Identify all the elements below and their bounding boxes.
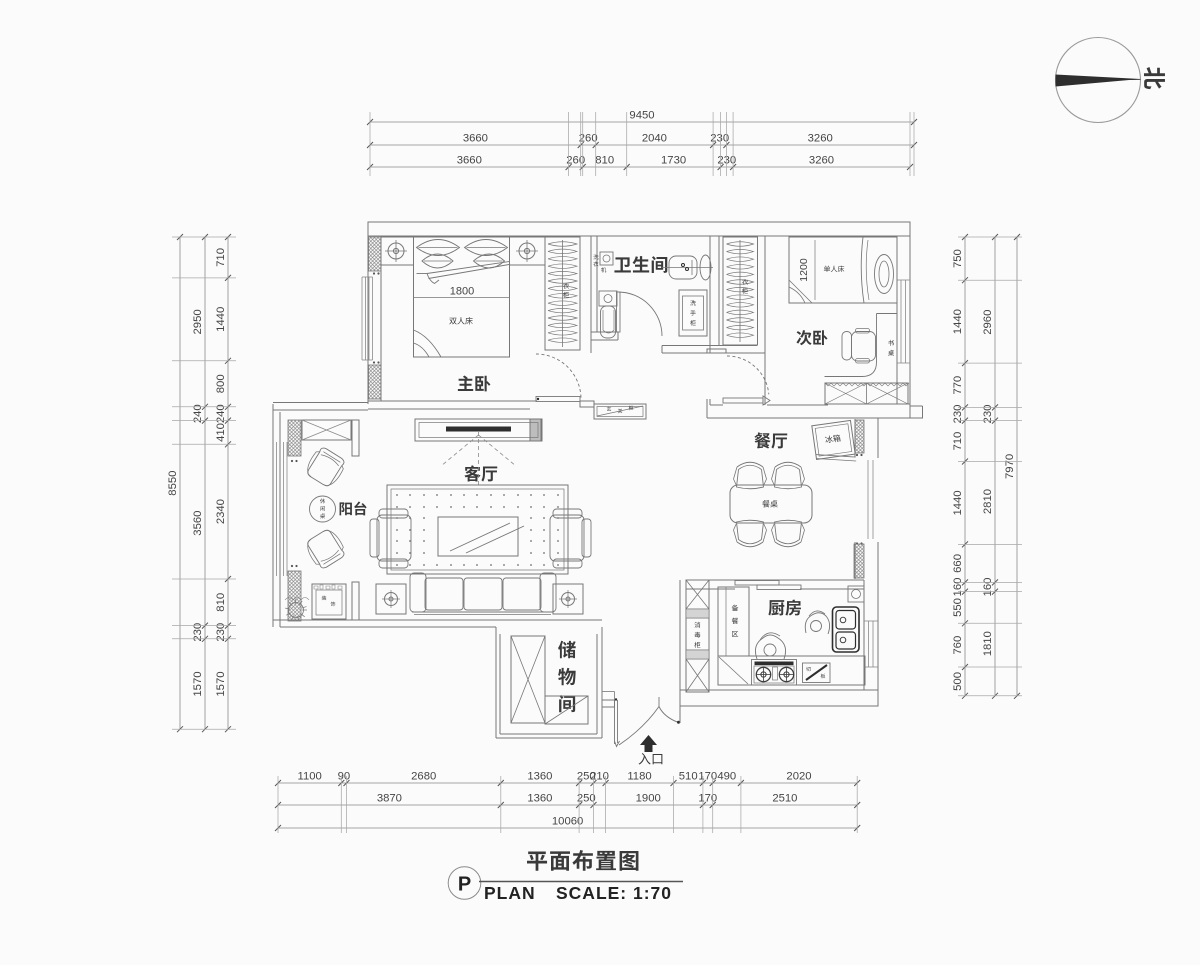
svg-text:710: 710 <box>215 248 227 267</box>
svg-text:2510: 2510 <box>772 793 797 805</box>
svg-text:3660: 3660 <box>463 133 488 145</box>
svg-text:2340: 2340 <box>215 499 227 524</box>
svg-text:170: 170 <box>698 771 717 783</box>
svg-text:510: 510 <box>679 771 698 783</box>
svg-text:410: 410 <box>215 423 227 442</box>
svg-text:260: 260 <box>579 133 598 145</box>
svg-text:500: 500 <box>952 672 964 691</box>
svg-text:750: 750 <box>952 249 964 268</box>
svg-text:1900: 1900 <box>636 793 661 805</box>
svg-text:PLAN: PLAN <box>484 883 536 903</box>
svg-text:710: 710 <box>952 432 964 451</box>
svg-text:260: 260 <box>566 155 585 167</box>
svg-text:490: 490 <box>717 771 736 783</box>
svg-text:1360: 1360 <box>527 793 552 805</box>
svg-text:800: 800 <box>215 374 227 393</box>
svg-text:1570: 1570 <box>192 671 204 696</box>
svg-text:2040: 2040 <box>642 133 667 145</box>
svg-text:2680: 2680 <box>411 771 436 783</box>
svg-text:90: 90 <box>338 771 351 783</box>
svg-text:3660: 3660 <box>457 155 482 167</box>
svg-text:1100: 1100 <box>298 771 322 783</box>
svg-text:1200: 1200 <box>798 258 810 282</box>
svg-text:160: 160 <box>982 578 994 597</box>
svg-text:P: P <box>458 874 471 896</box>
svg-text:760: 760 <box>952 636 964 655</box>
svg-text:160: 160 <box>952 578 964 597</box>
svg-text:7970: 7970 <box>1004 454 1016 479</box>
svg-text:1360: 1360 <box>527 771 552 783</box>
svg-text:2960: 2960 <box>982 310 994 335</box>
svg-text:3560: 3560 <box>192 511 204 536</box>
svg-text:3260: 3260 <box>809 155 834 167</box>
svg-text:9450: 9450 <box>629 110 654 122</box>
svg-text:2950: 2950 <box>192 309 204 334</box>
svg-text:SCALE: 1:70: SCALE: 1:70 <box>556 883 672 903</box>
svg-text:1440: 1440 <box>952 309 964 334</box>
svg-text:810: 810 <box>595 155 614 167</box>
svg-text:10060: 10060 <box>552 816 583 828</box>
svg-text:250: 250 <box>577 793 596 805</box>
svg-text:1800: 1800 <box>450 286 474 298</box>
svg-text:8550: 8550 <box>167 471 179 496</box>
svg-text:1810: 1810 <box>982 631 994 656</box>
svg-text:660: 660 <box>952 554 964 573</box>
svg-text:1440: 1440 <box>952 490 964 515</box>
svg-text:810: 810 <box>215 593 227 612</box>
svg-text:2810: 2810 <box>982 489 994 514</box>
svg-text:1440: 1440 <box>215 307 227 332</box>
svg-text:210: 210 <box>590 771 609 783</box>
svg-text:1180: 1180 <box>627 771 651 783</box>
svg-text:2020: 2020 <box>786 771 811 783</box>
svg-text:170: 170 <box>698 793 717 805</box>
svg-text:1570: 1570 <box>215 671 227 696</box>
svg-text:3870: 3870 <box>377 793 402 805</box>
svg-text:770: 770 <box>952 376 964 395</box>
svg-text:550: 550 <box>952 598 964 617</box>
svg-text:1730: 1730 <box>661 155 686 167</box>
svg-text:3260: 3260 <box>808 133 833 145</box>
